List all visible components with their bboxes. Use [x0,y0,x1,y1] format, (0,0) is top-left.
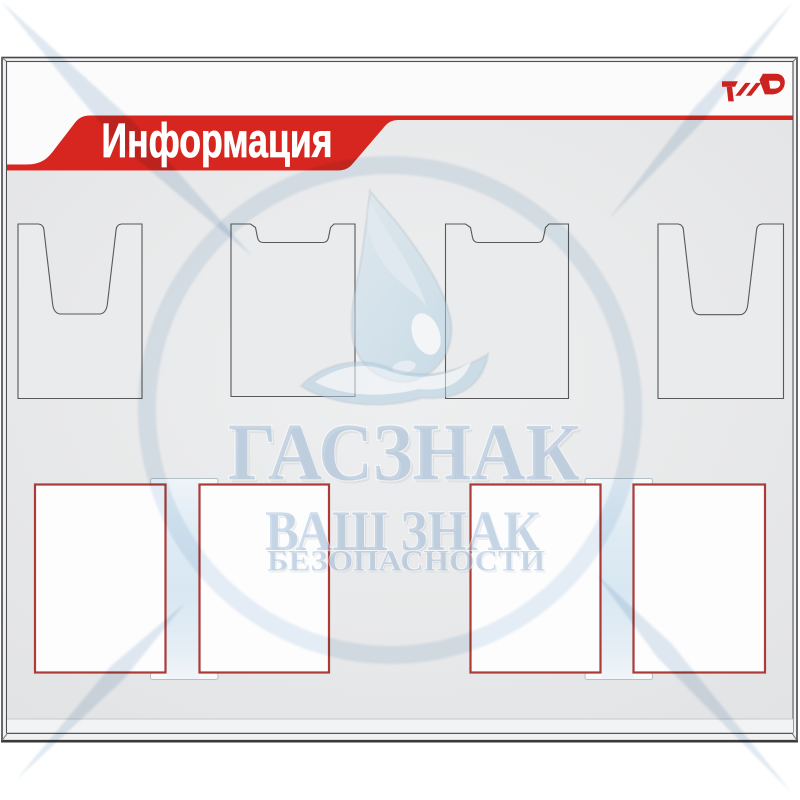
svg-text:БЕЗОПАСНОСТИ: БЕЗОПАСНОСТИ [267,545,545,578]
svg-text:ГАСЗНАК: ГАСЗНАК [228,407,580,498]
svg-text:Информация: Информация [102,115,333,168]
